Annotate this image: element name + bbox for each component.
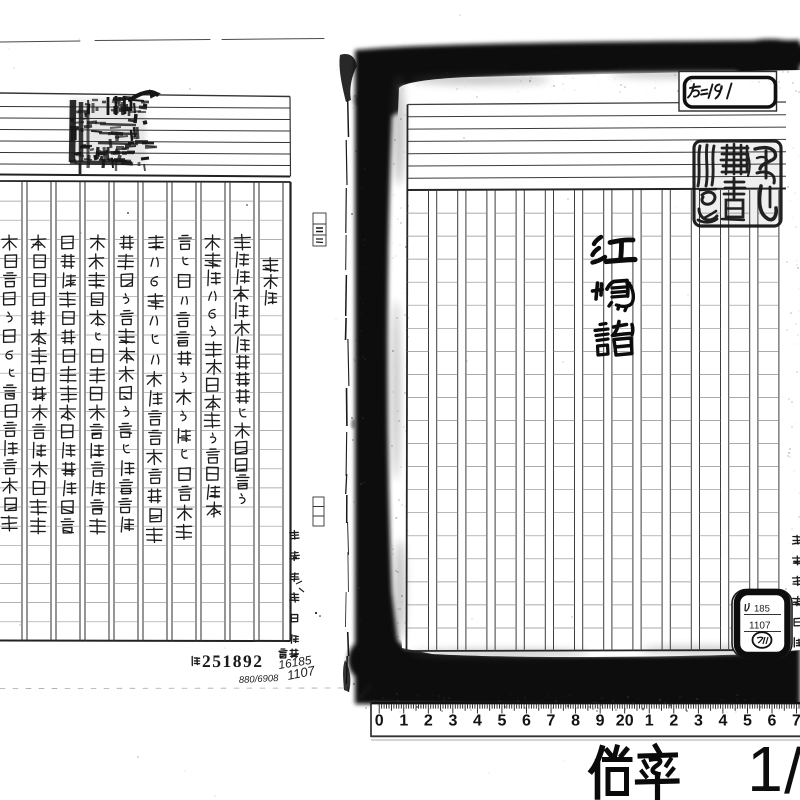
svg-text:7: 7 bbox=[547, 713, 556, 730]
svg-text:3: 3 bbox=[694, 713, 703, 730]
svg-text:20: 20 bbox=[616, 713, 634, 730]
svg-text:3: 3 bbox=[448, 713, 457, 730]
svg-text:8: 8 bbox=[571, 713, 580, 730]
svg-text:7: 7 bbox=[792, 713, 800, 730]
svg-text:6: 6 bbox=[522, 713, 531, 730]
svg-text:1107: 1107 bbox=[749, 621, 771, 632]
svg-text:1: 1 bbox=[747, 733, 783, 800]
svg-text:2: 2 bbox=[424, 713, 433, 730]
svg-text:9: 9 bbox=[596, 713, 605, 730]
svg-text:4: 4 bbox=[718, 713, 727, 730]
svg-text:6: 6 bbox=[768, 713, 777, 730]
svg-text:185: 185 bbox=[754, 604, 770, 615]
svg-text:0: 0 bbox=[375, 713, 384, 730]
svg-text:2: 2 bbox=[669, 713, 678, 730]
svg-text:/: / bbox=[784, 735, 800, 800]
svg-text:1: 1 bbox=[399, 713, 408, 730]
svg-text:4: 4 bbox=[473, 713, 482, 730]
svg-text:880/6908: 880/6908 bbox=[239, 673, 280, 686]
svg-text:5: 5 bbox=[497, 713, 506, 730]
svg-text:5: 5 bbox=[743, 713, 752, 730]
svg-text:1: 1 bbox=[645, 713, 654, 730]
svg-text:251892: 251892 bbox=[202, 651, 264, 671]
